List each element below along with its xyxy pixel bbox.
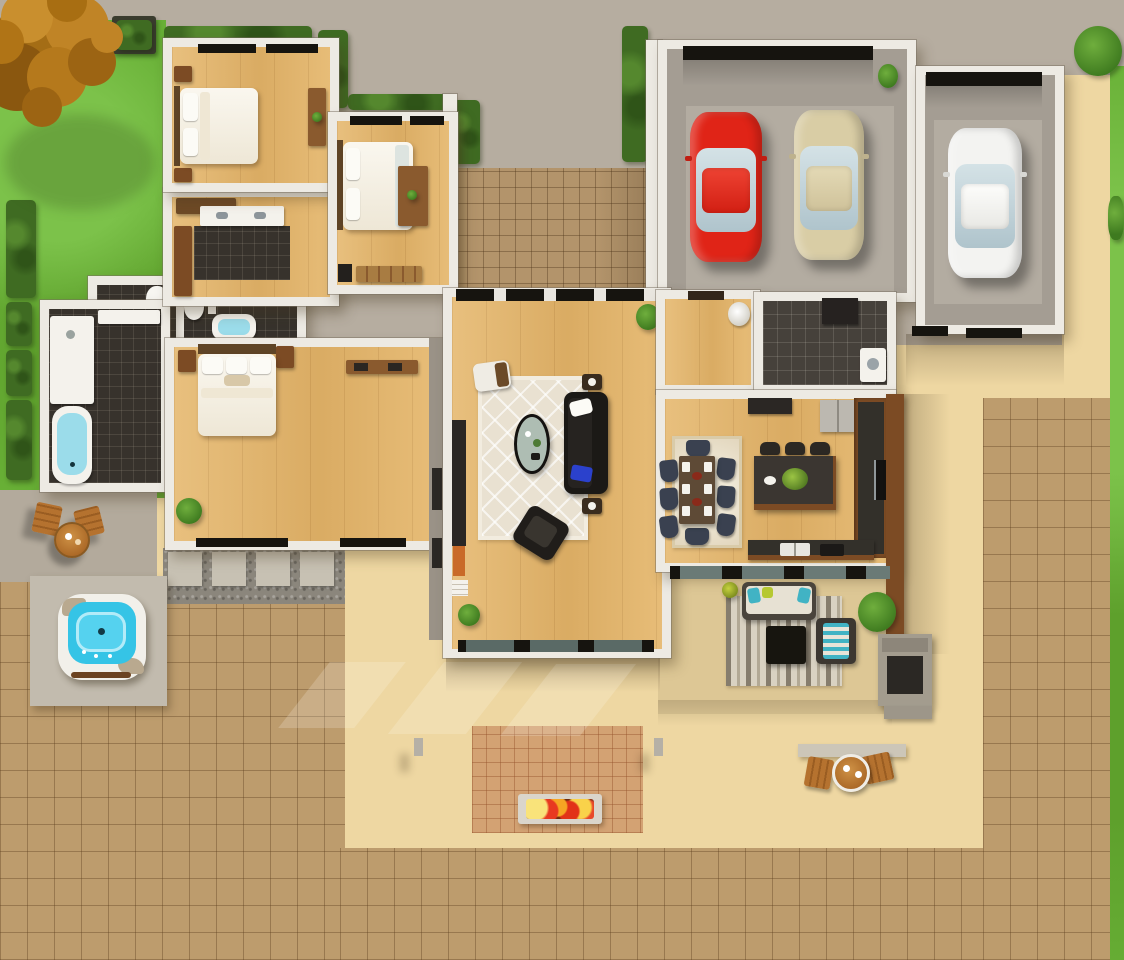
bistro-table <box>832 754 870 792</box>
car-mirror <box>862 154 869 159</box>
bedroom1-window <box>266 44 318 53</box>
floor-plan-scene <box>0 0 1124 960</box>
outdoor-sofa <box>742 582 816 620</box>
master-bed <box>198 354 276 436</box>
console-decor <box>354 363 368 371</box>
bed-sheet-fold <box>200 92 210 160</box>
centerpiece <box>692 472 702 480</box>
desk-plant <box>407 190 417 200</box>
car-mirror <box>685 156 692 161</box>
car-mirror <box>760 156 767 161</box>
sink <box>254 212 266 219</box>
shrub-by-garage <box>878 64 898 88</box>
patio-tree <box>858 592 896 632</box>
sink-divider <box>794 543 796 556</box>
pillow <box>202 357 223 374</box>
nightstand <box>174 66 192 82</box>
car-roof <box>702 168 750 213</box>
place-setting <box>682 484 690 494</box>
patio-sliding-door <box>670 566 890 579</box>
shower <box>50 316 94 404</box>
bed-1 <box>180 88 258 164</box>
cup <box>75 539 81 545</box>
hedge-west-1 <box>6 200 36 298</box>
lime-pillow <box>762 587 773 598</box>
cup <box>65 533 72 540</box>
shower-head <box>66 330 75 339</box>
patio-wall-stub <box>884 706 932 719</box>
island-flowers <box>782 468 808 490</box>
desk-plant <box>312 112 322 122</box>
garage-window-south <box>966 328 1022 338</box>
armchair-white <box>472 360 512 393</box>
side-table <box>582 498 602 514</box>
accent-pillow <box>224 375 250 386</box>
bedroom2-desk <box>398 166 428 226</box>
place-setting <box>682 462 690 472</box>
sink <box>216 212 228 219</box>
hot-tub-drain <box>98 628 105 635</box>
living-sliding-door <box>458 640 654 652</box>
fridge <box>820 400 856 432</box>
cooktop <box>820 544 844 556</box>
beige-car <box>794 110 864 260</box>
bar-stool <box>785 442 805 455</box>
place-setting <box>704 462 712 472</box>
coffee-table <box>514 414 550 474</box>
table-decor <box>525 431 531 437</box>
table-plant <box>533 439 541 447</box>
dining-chair <box>716 485 735 508</box>
plant-east-strip <box>1108 196 1124 240</box>
car-roof <box>806 166 852 211</box>
double-vanity <box>200 206 284 226</box>
dining-chair <box>685 528 709 545</box>
nightstand <box>174 168 192 182</box>
garden-table <box>54 522 90 558</box>
kitchen-sink <box>780 543 810 556</box>
washer-door <box>867 358 879 370</box>
master-window-south <box>196 538 288 547</box>
garage-door-shadow <box>683 60 873 86</box>
red-car <box>690 112 762 262</box>
entry-door-window-band <box>456 289 656 301</box>
jet <box>94 654 98 658</box>
pillow <box>226 357 247 374</box>
bookshelf <box>452 580 468 596</box>
garage-window-south <box>912 326 948 336</box>
master-bed-headboard <box>198 344 276 354</box>
bath-water <box>218 319 250 335</box>
bar-stool <box>760 442 780 455</box>
kitchen-island <box>754 456 836 510</box>
bedroom1-window <box>198 44 256 53</box>
pillow <box>250 357 271 374</box>
pillow <box>183 93 198 121</box>
armchair-throw <box>494 362 509 387</box>
outdoor-fireplace <box>878 634 932 706</box>
garage-shadow-south <box>906 334 1064 386</box>
side-table <box>582 374 602 390</box>
nightstand <box>276 346 294 368</box>
hedge-courtyard-east <box>622 26 648 162</box>
kitchen-wall-cabinet <box>748 398 792 414</box>
garage-door-opening <box>683 46 873 60</box>
hedge-west-3 <box>6 350 32 396</box>
house-shadow-east <box>904 394 950 654</box>
bush-northeast <box>1074 26 1122 76</box>
hot-tub-water <box>68 602 136 664</box>
closet-cabinet <box>174 226 192 296</box>
master-bathtub <box>52 406 92 484</box>
lounge-chair <box>816 618 856 664</box>
living-plant-sw <box>458 604 480 626</box>
paver-area-east <box>983 398 1124 960</box>
car-roof <box>961 184 1010 229</box>
patio-shadow-south <box>658 700 892 726</box>
kitchen-counter-east <box>854 398 890 558</box>
centerpiece <box>692 498 702 506</box>
pillow <box>183 128 198 156</box>
garage-door-opening <box>926 72 1042 86</box>
armchair-cushion <box>522 514 558 549</box>
cup <box>588 378 596 386</box>
place-setting <box>682 506 690 516</box>
fire-pit <box>518 794 602 824</box>
hot-tub <box>58 594 146 680</box>
place-setting <box>704 484 712 494</box>
stepping-stone <box>256 552 290 586</box>
kitchen-counter-south <box>748 540 874 560</box>
pillow <box>346 188 360 220</box>
pillow <box>346 148 360 180</box>
sofa <box>564 392 608 494</box>
dining-table <box>679 456 715 524</box>
bed-sheet-fold <box>201 388 273 398</box>
island-bowl <box>764 476 776 485</box>
garage-door-shadow <box>926 86 1042 108</box>
bedroom2-dark-cabinet <box>338 264 352 282</box>
autumn-tree <box>0 0 157 157</box>
white-car <box>948 128 1022 278</box>
dining-chair <box>659 459 679 483</box>
nightstand <box>178 350 196 372</box>
dining-chair <box>659 487 678 510</box>
media-wall <box>452 420 466 546</box>
bedroom2-window <box>350 116 402 125</box>
outdoor-coffee-table <box>766 626 806 664</box>
master-window-south <box>340 538 406 547</box>
table-decor <box>531 453 540 460</box>
car-mirror <box>789 154 796 159</box>
hot-tub-wood-rim <box>71 672 131 678</box>
console-decor <box>388 363 402 371</box>
bedroom1-desk <box>308 88 326 146</box>
bar-stool <box>810 442 830 455</box>
jet <box>108 654 112 658</box>
bistro-chair <box>804 756 835 790</box>
cup <box>588 502 596 510</box>
foyer-stand <box>728 302 750 326</box>
mudroom-cabinet <box>822 298 858 324</box>
patio-light-post <box>414 738 423 756</box>
sand-strip-east <box>1062 75 1114 350</box>
stepping-stone <box>212 552 246 586</box>
jet <box>82 650 86 654</box>
bedroom2-bench <box>356 266 422 282</box>
stepping-stone <box>300 552 334 586</box>
lounge-cushion <box>823 623 849 659</box>
small-bathtub <box>212 314 256 340</box>
master-plant <box>176 498 202 524</box>
foyer-door-header <box>688 291 724 300</box>
west-wall-window <box>432 538 442 568</box>
fire-pit-flames <box>526 799 594 819</box>
stepping-stone <box>168 552 202 586</box>
bath-drain <box>70 462 75 467</box>
master-console-table <box>346 360 418 374</box>
teal-pillow <box>747 587 761 604</box>
fireplace-cap <box>882 638 928 652</box>
hedge-row-mid <box>348 94 452 110</box>
media-shelf-books <box>453 546 465 576</box>
bathroom-vanity <box>98 310 160 324</box>
washer <box>860 348 886 382</box>
car-mirror <box>943 172 950 177</box>
patio-light-post <box>654 738 663 756</box>
hedge-west-2 <box>6 302 32 346</box>
bedroom2-window <box>410 116 444 125</box>
cup <box>855 771 862 778</box>
dining-chair <box>686 440 710 457</box>
fridge-door-line <box>837 400 839 432</box>
place-setting <box>704 506 712 516</box>
yellow-plant <box>722 582 738 598</box>
hedge-west-4 <box>6 400 32 480</box>
car-mirror <box>1020 172 1027 177</box>
west-wall-window <box>432 468 442 510</box>
firebox <box>887 656 923 694</box>
shared-bathroom-floor <box>194 226 290 280</box>
cup <box>843 765 850 772</box>
